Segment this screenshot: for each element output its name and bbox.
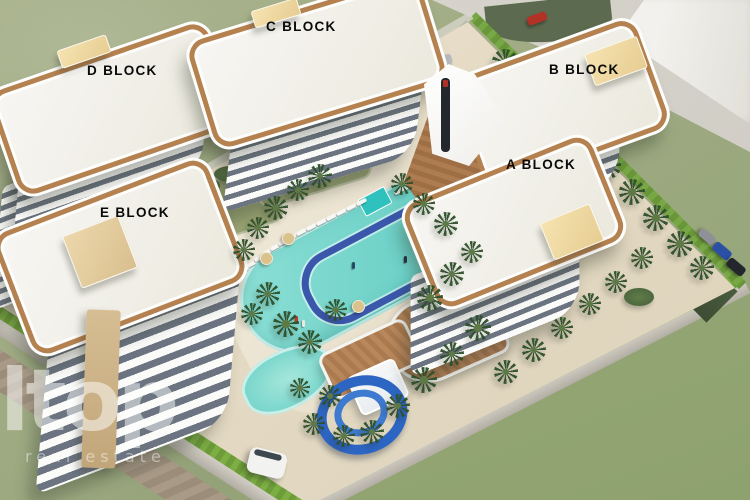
palm-tree (241, 303, 263, 325)
palm-tree (256, 282, 280, 306)
block-e-label: E BLOCK (100, 205, 170, 220)
palm-tree (434, 212, 458, 236)
palm-tree (325, 299, 347, 321)
watermark-tagline: real estate (25, 447, 166, 466)
palm-tree (461, 241, 483, 263)
palm-tree (391, 173, 413, 195)
palm-tree (605, 271, 627, 293)
palm-tree (360, 420, 384, 444)
block-b-label: B BLOCK (549, 62, 620, 77)
palm-tree (440, 262, 464, 286)
palm-tree (579, 293, 601, 315)
palm-tree (333, 425, 355, 447)
palm-tree (308, 164, 332, 188)
entrance-monument-slot (441, 78, 450, 152)
palm-tree (494, 360, 518, 384)
palm-tree (273, 311, 299, 337)
palm-tree (298, 330, 322, 354)
palm-tree (551, 317, 573, 339)
block-a-label: A BLOCK (506, 157, 576, 172)
palm-tree (290, 378, 310, 398)
entrance-monument-logo (443, 80, 448, 87)
palm-tree (631, 247, 653, 269)
palm-tree (264, 196, 288, 220)
watermark-brand: ltop (0, 358, 175, 444)
palm-tree (247, 217, 269, 239)
aerial-render-scene: D BLOCK C BLOCK B BLOCK A BLOCK E BLOCK … (0, 0, 750, 500)
palm-tree (233, 239, 255, 261)
block-d-label: D BLOCK (87, 63, 158, 78)
block-c-label: C BLOCK (266, 19, 337, 34)
palm-tree (287, 179, 309, 201)
palm-tree (465, 315, 491, 341)
palm-tree (386, 394, 410, 418)
palm-tree (411, 367, 437, 393)
palm-tree (303, 413, 325, 435)
palm-tree (319, 385, 341, 407)
palm-tree (440, 342, 464, 366)
palm-tree (522, 338, 546, 362)
palm-tree (417, 285, 443, 311)
palm-tree (413, 193, 435, 215)
